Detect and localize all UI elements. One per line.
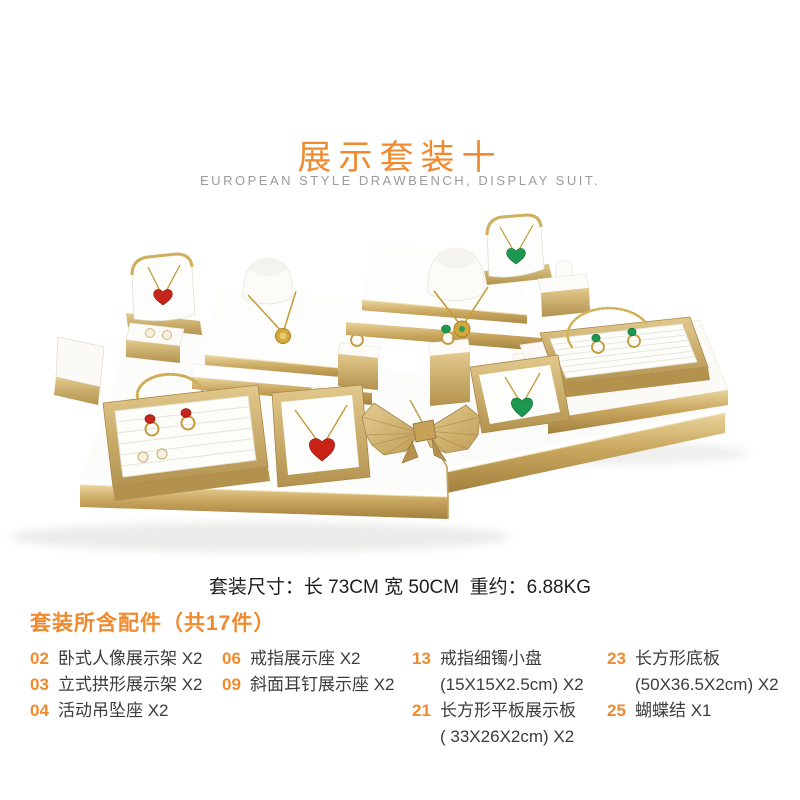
pendant-pad-red <box>272 385 370 487</box>
part-label: 立式拱形展示架 X2 <box>58 675 203 694</box>
page-subtitle: EUROPEAN STYLE DRAWBENCH, DISPLAY SUIT. <box>0 173 800 188</box>
part-item: 06戒指展示座 X2 <box>222 646 412 672</box>
pendant-pad-green <box>470 353 570 433</box>
part-label: 长方形底板 <box>635 649 720 668</box>
earring-seat <box>126 323 184 363</box>
part-label: 斜面耳钉展示座 X2 <box>250 675 395 694</box>
part-item: 13戒指细镯小盘 <box>412 646 607 672</box>
part-number: 13 <box>412 646 434 672</box>
part-number: 09 <box>222 672 244 698</box>
part-item: 25蝴蝶结 X1 <box>607 698 787 724</box>
parts-column-2: 06戒指展示座 X2 09斜面耳钉展示座 X2 <box>222 646 412 698</box>
part-size: (50X36.5X2cm) X2 <box>607 672 787 698</box>
part-size: ( 33X26X2cm) X2 <box>412 724 607 750</box>
product-photo <box>0 205 800 570</box>
set-dimensions: 套装尺寸：长 73CM 宽 50CM 重约：6.88KG <box>0 572 800 599</box>
part-label: 蝴蝶结 X1 <box>635 701 712 720</box>
part-item: 02卧式人像展示架 X2 <box>30 646 222 672</box>
parts-column-3: 13戒指细镯小盘 (15X15X2.5cm) X2 21长方形平板展示板 ( 3… <box>412 646 607 750</box>
part-label: 戒指细镯小盘 <box>440 649 542 668</box>
parts-column-4: 23长方形底板 (50X36.5X2cm) X2 25蝴蝶结 X1 <box>607 646 787 724</box>
parts-list: 02卧式人像展示架 X2 03立式拱形展示架 X2 04活动吊坠座 X2 06戒… <box>30 646 790 750</box>
part-number: 23 <box>607 646 629 672</box>
ring-tray-left <box>103 385 270 501</box>
part-number: 04 <box>30 698 52 724</box>
part-item: 21长方形平板展示板 <box>412 698 607 724</box>
part-number: 06 <box>222 646 244 672</box>
part-number: 02 <box>30 646 52 672</box>
part-label: 戒指展示座 X2 <box>250 649 361 668</box>
part-label: 卧式人像展示架 X2 <box>58 649 203 668</box>
jewelry-display-scene-illustration <box>0 205 800 570</box>
part-item: 04活动吊坠座 X2 <box>30 698 222 724</box>
parts-section-header: 套装所含配件（共17件） <box>30 607 275 637</box>
part-number: 03 <box>30 672 52 698</box>
page-title: 展示套装十 <box>0 130 800 179</box>
part-item: 23长方形底板 <box>607 646 787 672</box>
product-detail-page: 展示套装十 EUROPEAN STYLE DRAWBENCH, DISPLAY … <box>0 0 800 800</box>
arch-stand-red <box>126 254 202 335</box>
part-item: 09斜面耳钉展示座 X2 <box>222 672 412 698</box>
parts-column-1: 02卧式人像展示架 X2 03立式拱形展示架 X2 04活动吊坠座 X2 <box>30 646 222 724</box>
part-number: 25 <box>607 698 629 724</box>
part-label: 活动吊坠座 X2 <box>58 701 169 720</box>
arch-stand-green <box>484 215 552 285</box>
part-item: 03立式拱形展示架 X2 <box>30 672 222 698</box>
part-size: (15X15X2.5cm) X2 <box>412 672 607 698</box>
part-number: 21 <box>412 698 434 724</box>
part-label: 长方形平板展示板 <box>440 701 576 720</box>
